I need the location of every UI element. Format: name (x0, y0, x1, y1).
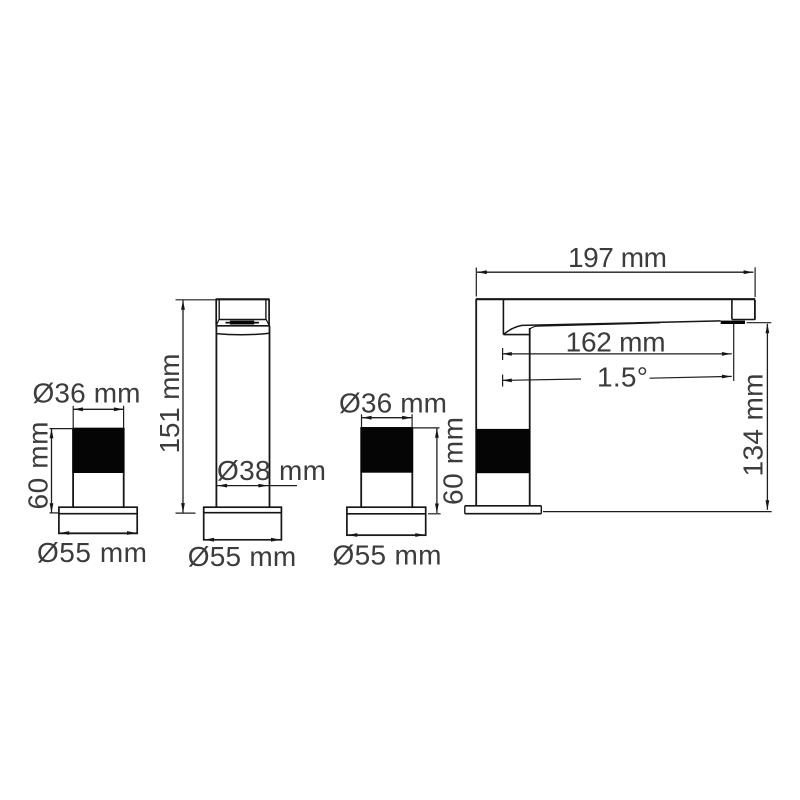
svg-text:60 mm: 60 mm (23, 422, 54, 510)
svg-text:Ø38 mm: Ø38 mm (217, 455, 326, 486)
svg-text:Ø55 mm: Ø55 mm (333, 539, 442, 570)
svg-text:Ø36 mm: Ø36 mm (339, 387, 447, 418)
svg-text:151 mm: 151 mm (154, 354, 185, 454)
svg-text:Ø36 mm: Ø36 mm (33, 378, 141, 409)
svg-text:Ø55 mm: Ø55 mm (188, 541, 297, 572)
svg-text:Ø55 mm: Ø55 mm (37, 537, 147, 568)
svg-text:134 mm: 134 mm (738, 374, 769, 477)
svg-text:162 mm: 162 mm (566, 327, 666, 358)
svg-text:197 mm: 197 mm (568, 242, 667, 273)
svg-text:60 mm: 60 mm (438, 417, 469, 505)
svg-text:1.5°: 1.5° (597, 362, 648, 393)
